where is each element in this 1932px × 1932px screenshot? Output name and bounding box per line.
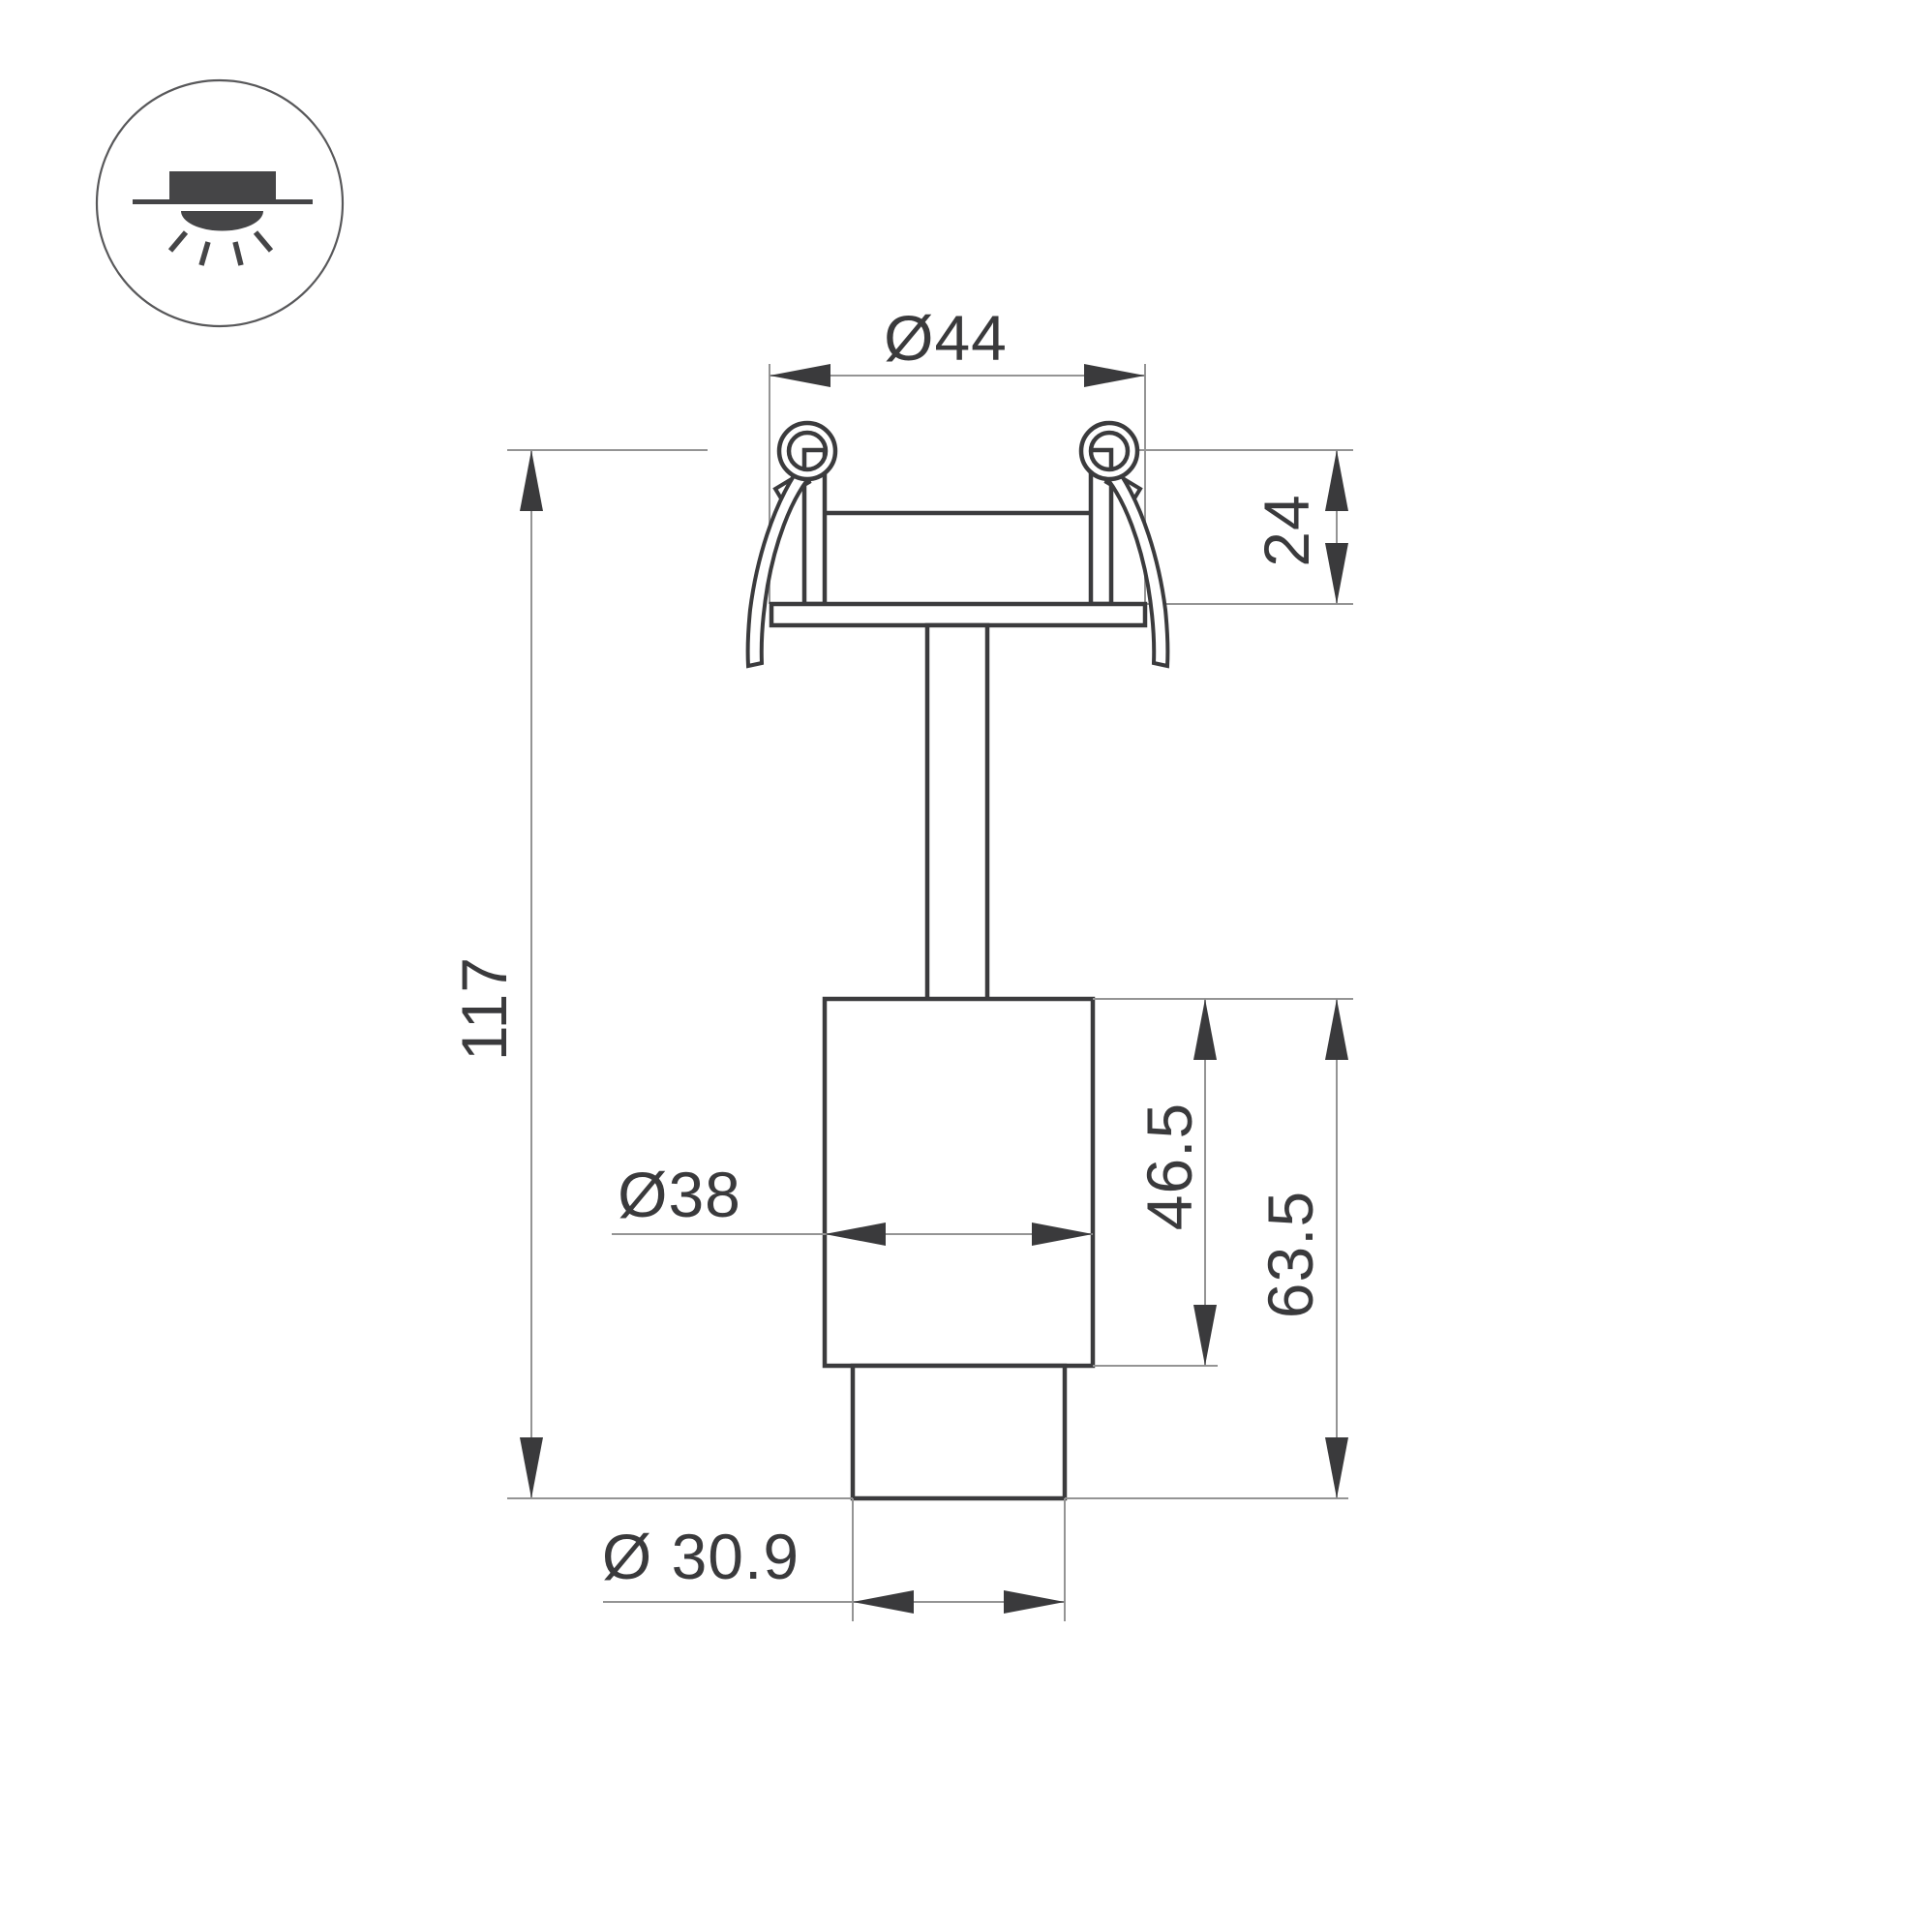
arrowhead-down (1193, 1305, 1217, 1366)
spring-clip-right (1108, 474, 1167, 666)
dim-overall-height: 117 (448, 450, 708, 1498)
icon-ceiling-line (133, 199, 313, 204)
arrowhead-up (1325, 450, 1348, 511)
arrowhead-right (1084, 364, 1145, 387)
stem (927, 625, 987, 1000)
trim-flange (771, 604, 1145, 625)
dim-body-height-label: 46.5 (1133, 1102, 1205, 1230)
dim-tube-diameter-label: Ø 30.9 (602, 1521, 800, 1592)
dim-below-ceiling-height: 63.5 (1254, 999, 1348, 1498)
dim-recess-depth: 24 (1136, 450, 1353, 604)
arrowhead-right (1004, 1590, 1065, 1614)
arrowhead-down (1325, 543, 1348, 604)
dim-cutout-diameter-label: Ø44 (884, 302, 1008, 374)
arrowhead-up (1325, 999, 1348, 1060)
arrowhead-left (853, 1590, 914, 1614)
technical-drawing-page: Ø44 24 117 (0, 0, 1932, 1932)
lamp-body (825, 999, 1093, 1366)
dim-tube-diameter: Ø 30.9 (602, 1498, 1065, 1621)
arrowhead-down (1325, 1437, 1348, 1498)
icon-lamp-body (169, 171, 276, 201)
dim-recess-depth-label: 24 (1251, 494, 1322, 566)
arrowhead-up (520, 450, 543, 511)
arrowhead-left (770, 364, 830, 387)
dim-below-ceiling-height-label: 63.5 (1254, 1191, 1326, 1318)
arrowhead-up (1193, 999, 1217, 1060)
dim-overall-height-label: 117 (448, 956, 520, 1061)
spring-clip-left (748, 474, 807, 666)
dim-body-diameter-label: Ø38 (618, 1159, 741, 1230)
arrowhead-down (520, 1437, 543, 1498)
dimension-drawing: Ø44 24 117 (0, 0, 1932, 1932)
icon-light-rays (170, 232, 271, 265)
icon-light-dome (181, 211, 263, 230)
fixture-outline (748, 423, 1168, 1498)
recessed-downlight-icon (97, 80, 343, 326)
lamp-tube (853, 1366, 1065, 1498)
